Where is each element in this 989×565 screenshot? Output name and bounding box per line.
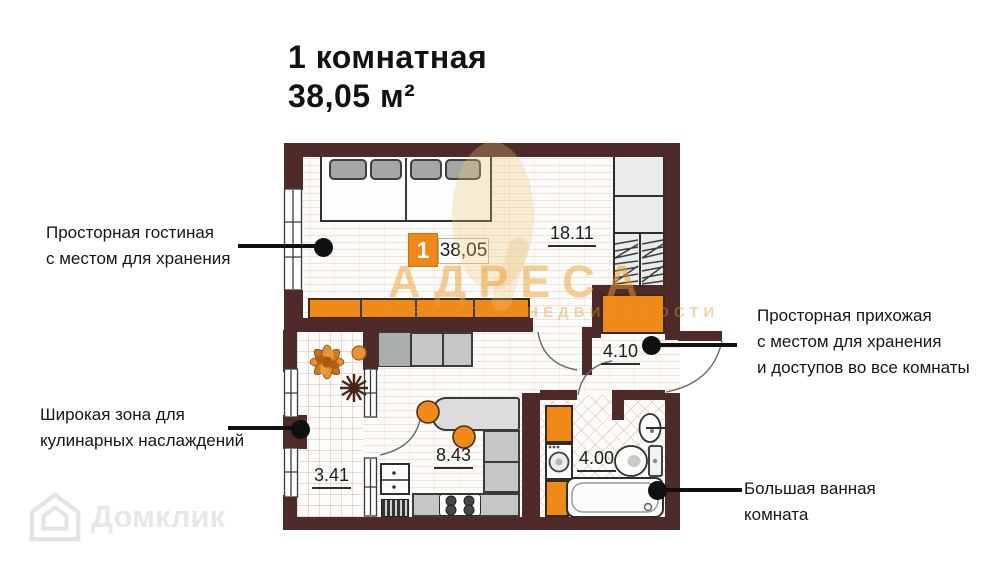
callout-bathroom-dot [648,481,667,500]
wall-left-upper [284,143,303,190]
cabinet-divider [410,333,412,366]
callout-hallway-line3: и доступов во все комнаты [757,355,970,381]
cabinet-divider [442,333,444,366]
agency-name-watermark: АДРЕСА [388,256,650,308]
callout-kitchen: Широкая зона для кулинарных наслаждений [40,402,244,454]
callout-living: Просторная гостиная с местом для хранени… [46,220,230,272]
wall-hall-divider [582,327,592,375]
callout-living-line [238,244,324,248]
wall-right-lower [665,393,680,530]
counter-divider [484,461,519,463]
floorplan-page: { "page_title": {"line1": "1 комнатная",… [0,0,989,565]
title-line-rooms: 1 комнатная [288,38,487,77]
agency-subtitle-watermark: АГЕНТСТВО НЕДВИЖИМОСТИ [382,304,719,321]
kitchen-radiator [381,499,409,517]
callout-kitchen-dot [291,420,310,439]
callout-kitchen-line2: кулинарных наслаждений [40,428,244,454]
bed-pillow [329,159,367,180]
callout-living-line2: с местом для хранения [46,246,230,272]
wall-kitchen-bath [522,393,540,517]
stove [439,494,481,516]
wall-entry-lintel [678,331,722,341]
room-area-balcony: 3.41 [312,465,351,489]
portal-watermark: Домклик [28,490,225,544]
page-title: 1 комнатная 38,05 м² [288,38,487,116]
callout-hallway-line1: Просторная прихожая [757,303,970,329]
callout-hallway-line2: с местом для хранения [757,329,970,355]
callout-hallway: Просторная прихожая с местом для хранени… [757,303,970,381]
title-line-area: 38,05 м² [288,77,487,116]
fridge [380,463,410,495]
wall-bath-stub [612,390,624,420]
kitchen-cabinet-segment [379,333,410,366]
wall-balcony-divider-a [363,330,378,370]
wall-balcony-left [283,330,297,372]
room-area-hallway: 4.10 [601,341,640,365]
callout-kitchen-line1: Широкая зона для [40,402,244,428]
callout-hallway-line [652,343,737,347]
bed-center-divider [405,158,407,220]
room-area-kitchen: 8.43 [434,445,473,469]
bathroom-cabinet-bottom [545,480,569,517]
callout-kitchen-line [228,426,300,430]
callout-living-line1: Просторная гостиная [46,220,230,246]
house-icon [28,490,82,544]
wall-balcony-bottom [283,517,378,530]
bathroom-cabinet-top [545,405,573,443]
callout-living-dot [314,238,333,257]
kitchen-table [432,397,520,431]
wall-bath-top-left [540,390,577,400]
callout-bathroom-line2: комната [744,502,876,528]
washing-machine [545,443,573,480]
callout-hallway-dot [642,336,661,355]
callout-bathroom-line [658,488,742,492]
wall-bottom [375,517,680,530]
bed-pillow [370,159,402,180]
portal-name-watermark: Домклик [91,499,225,535]
room-area-bathroom: 4.00 [577,448,616,472]
bed-pillow [410,159,442,180]
cabinet-divider [360,299,362,318]
room-area-living: 18.11 [548,223,596,247]
callout-bathroom: Большая ванная комната [744,476,876,528]
callout-bathroom-line1: Большая ванная [744,476,876,502]
